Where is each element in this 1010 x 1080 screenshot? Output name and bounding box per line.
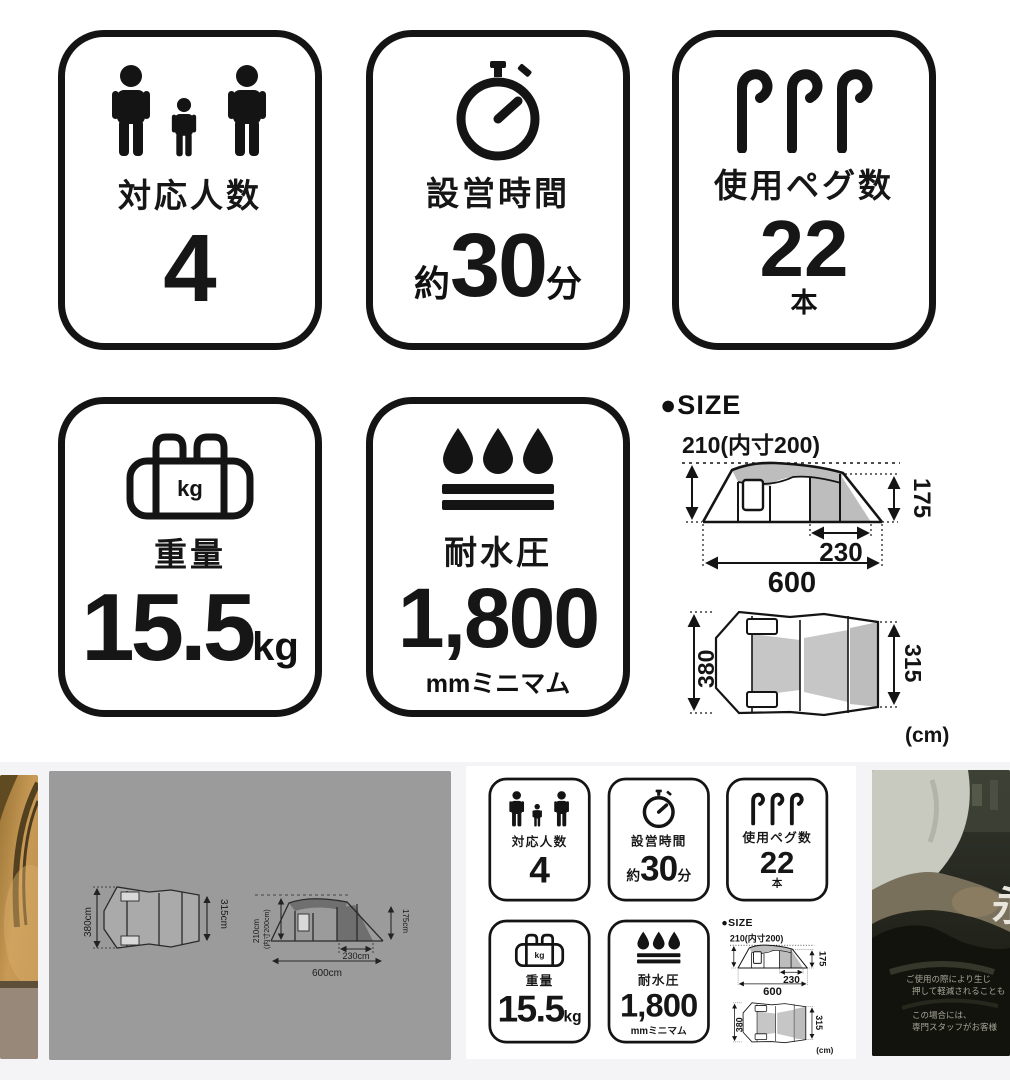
weight-value: 15.5: [497, 990, 563, 1027]
side-top-dim-label: 210(内寸200): [730, 932, 783, 943]
plan-unit-label: (cm): [905, 724, 949, 747]
plan-left-dim-label: 380: [693, 650, 719, 688]
weight-label: 重量: [154, 536, 226, 574]
thumb-side-right-label: 175cm: [401, 909, 410, 933]
setup-value-row: 約30分: [414, 221, 582, 311]
water-drops-icon: [439, 426, 557, 518]
thumbnail-size-diagram[interactable]: 380cm 315cm 21: [49, 771, 451, 1060]
capacity-value: 4: [163, 221, 216, 317]
weight-unit: kg: [564, 1009, 582, 1024]
setup-prefix: 約: [414, 266, 450, 302]
badge-capacity: 対応人数 4: [58, 30, 322, 350]
thumb-side-inner-label: 230cm: [342, 951, 369, 961]
weight-label: 重量: [526, 973, 554, 988]
thumbnail-tent-photo-partial[interactable]: [0, 775, 38, 1059]
pegs-value: 22: [760, 209, 849, 289]
capacity-label: 対応人数: [118, 177, 262, 215]
plan-right-dim-label: 315: [900, 644, 926, 683]
stopwatch-icon: [450, 59, 546, 163]
setup-value-row: 約30分: [626, 852, 691, 887]
plan-right-dim-label: 315: [814, 1015, 824, 1030]
setup-prefix: 約: [626, 869, 640, 883]
badge-weight: kg 重量 15.5kg: [58, 397, 322, 717]
side-bottom-dim-label: 600: [768, 567, 816, 599]
badge-pegs: 使用ペグ数 22 本: [672, 30, 936, 350]
size-heading: ●SIZE: [721, 917, 752, 929]
duffel-bag-icon: kg: [514, 932, 566, 968]
pegs-label: 使用ペグ数: [714, 167, 894, 205]
badge-setup-time: 設営時間 約30分: [608, 778, 710, 902]
badge-pegs: 使用ペグ数 22 本: [726, 778, 828, 902]
size-heading: ●SIZE: [660, 390, 741, 421]
photo-caption-line3: この場合には、: [912, 1010, 972, 1020]
setup-value: 30: [450, 221, 546, 311]
setup-suffix: 分: [677, 869, 691, 883]
side-bottom-dim-label: 600: [763, 986, 782, 998]
craftsman-photo-art: 永 ご使用の際により生じ 押して軽減されることも この場合には、 専門スタッフが…: [872, 770, 1010, 1056]
screenshot-root: 対応人数 4 設営時間 約30分: [0, 0, 1010, 1080]
tent-photo-art: [0, 775, 38, 1059]
water-label: 耐水圧: [638, 973, 680, 988]
thumb-side-height2-label: (内寸200cm): [262, 909, 271, 949]
pegs-label: 使用ペグ数: [742, 831, 812, 846]
pegs-value: 22: [760, 847, 794, 878]
thumbnail-spec-sheet[interactable]: 対応人数 4 設営時間 約30分: [466, 766, 856, 1059]
bag-kg-text: kg: [177, 476, 203, 501]
photo-caption-line2: 押して軽減されることも: [912, 986, 1005, 996]
side-right-dim-label: 175: [908, 478, 935, 518]
thumbnail-strip: 380cm 315cm 21: [0, 762, 1010, 1080]
bag-kg-text: kg: [535, 950, 545, 960]
stopwatch-icon: [640, 789, 677, 829]
photo-caption-line1: ご使用の際により生じ: [906, 974, 991, 984]
spec-sheet: 対応人数 4 設営時間 約30分: [0, 0, 1010, 762]
setup-label: 設営時間: [631, 834, 687, 849]
setup-value: 30: [640, 852, 677, 887]
water-drops-icon: [636, 931, 682, 967]
badge-weight: kg 重量 15.5kg: [488, 920, 590, 1044]
badge-water-resistance: 耐水圧 1,800 mmミニマム: [608, 920, 710, 1044]
thumb-plan-left-label: 380cm: [83, 907, 94, 937]
side-inner-dim-label: 230: [783, 975, 800, 986]
pegs-unit: 本: [791, 289, 818, 319]
size-diagrams: 210(内寸200) 175 230: [718, 929, 838, 1057]
water-unit: mmミニマム: [631, 1023, 687, 1037]
people-icon: [507, 791, 572, 828]
setup-label: 設営時間: [426, 175, 570, 213]
badge-setup-time: 設営時間 約30分: [366, 30, 630, 350]
duffel-bag-icon: kg: [123, 428, 257, 522]
photo-caption-line4: 専門スタッフがお客様: [912, 1022, 998, 1032]
weight-unit: kg: [252, 627, 299, 667]
tent-pegs-icon: [748, 792, 806, 825]
plan-unit-label: (cm): [816, 1046, 833, 1055]
badge-capacity: 対応人数 4: [488, 778, 590, 902]
water-value: 1,800: [398, 576, 598, 660]
mini-spec-sheet: 対応人数 4 設営時間 約30分: [466, 766, 856, 1059]
tent-pegs-icon: [729, 67, 879, 153]
side-top-dim-label: 210(内寸200): [682, 432, 820, 458]
setup-suffix: 分: [546, 266, 582, 302]
badge-water-resistance: 耐水圧 1,800 mmミニマム: [366, 397, 630, 717]
side-right-dim-label: 175: [818, 951, 828, 966]
pegs-unit: 本: [772, 878, 782, 889]
diagram-thumb-art: 380cm 315cm 21: [49, 771, 451, 1060]
water-unit: mmミニマム: [426, 664, 570, 700]
thumb-plan-right-label: 315cm: [218, 899, 229, 929]
people-icon: [106, 65, 274, 161]
plan-left-dim-label: 380: [734, 1017, 744, 1032]
photo-big-character: 永: [992, 885, 1010, 929]
size-diagrams: 210(内寸200) 175 230: [652, 420, 962, 752]
weight-value-row: 15.5kg: [497, 990, 581, 1027]
capacity-label: 対応人数: [512, 834, 568, 849]
water-value: 1,800: [620, 989, 697, 1022]
thumb-side-height1-label: 210cm: [252, 919, 261, 943]
weight-value-row: 15.5kg: [81, 580, 299, 676]
water-label: 耐水圧: [444, 534, 552, 572]
thumb-side-bottom-label: 600cm: [312, 968, 342, 979]
capacity-value: 4: [529, 852, 550, 889]
spec-sheet: 対応人数 4 設営時間 約30分: [466, 766, 856, 1059]
weight-value: 15.5: [81, 580, 252, 676]
thumbnail-craftsman-photo[interactable]: 永 ご使用の際により生じ 押して軽減されることも この場合には、 専門スタッフが…: [872, 770, 1010, 1056]
